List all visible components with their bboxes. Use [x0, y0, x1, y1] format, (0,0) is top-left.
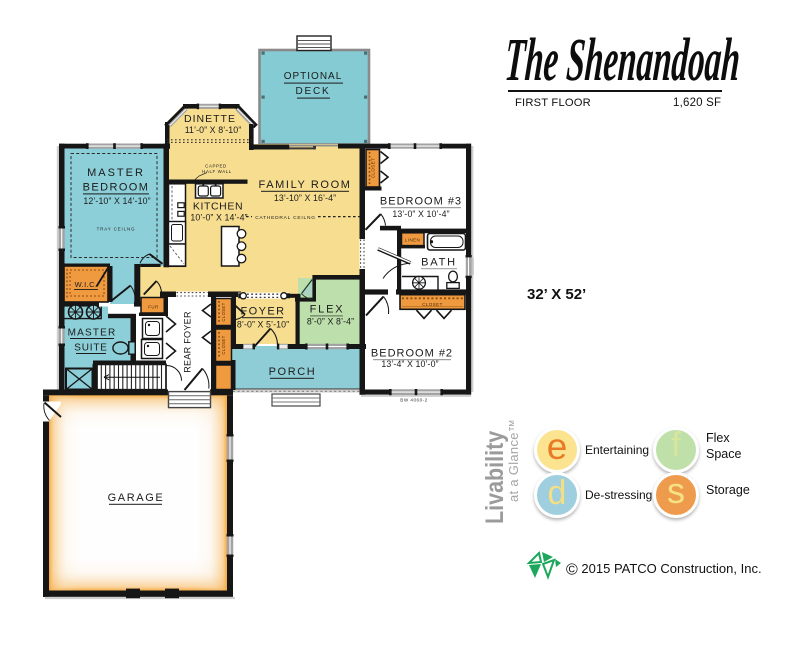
svg-text:11’-0” X 8’-10”: 11’-0” X 8’-10” — [185, 125, 242, 135]
svg-text:CLOSET: CLOSET — [422, 302, 443, 307]
svg-text:DINETTE: DINETTE — [184, 113, 236, 125]
svg-text:CLOSET: CLOSET — [221, 335, 226, 354]
svg-text:W.I.C.: W.I.C. — [75, 280, 98, 289]
svg-text:CLOSET: CLOSET — [221, 302, 226, 321]
svg-text:SUITE: SUITE — [74, 343, 107, 354]
svg-text:8’-0” X 5’-10”: 8’-0” X 5’-10” — [237, 320, 289, 330]
svg-text:BEDROOM #3: BEDROOM #3 — [380, 196, 462, 208]
svg-text:OPTIONAL: OPTIONAL — [284, 71, 343, 82]
svg-text:8’-0” X 8’-4”: 8’-0” X 8’-4” — [307, 317, 354, 327]
svg-text:CAPPED: CAPPED — [205, 164, 227, 169]
svg-text:MASTER: MASTER — [87, 167, 145, 179]
svg-text:PORCH: PORCH — [269, 366, 317, 378]
svg-text:REAR FOYER: REAR FOYER — [183, 311, 193, 373]
svg-text:DECK: DECK — [296, 86, 331, 97]
svg-text:FOYER: FOYER — [241, 306, 286, 318]
svg-text:CATHEDRAL CEILNG: CATHEDRAL CEILNG — [255, 215, 316, 221]
svg-text:LINEN: LINEN — [405, 238, 420, 243]
svg-text:GARAGE: GARAGE — [108, 492, 165, 504]
svg-text:13’-4” X 10’-0”: 13’-4” X 10’-0” — [381, 359, 438, 369]
svg-text:CLOSET: CLOSET — [371, 158, 376, 179]
svg-text:13’-0” X 10’-4”: 13’-0” X 10’-4” — [392, 209, 449, 219]
svg-text:BATH: BATH — [421, 257, 457, 269]
svg-text:KITCHEN: KITCHEN — [193, 201, 243, 213]
svg-text:FUR: FUR — [148, 305, 159, 310]
svg-text:13’-10” X 16’-4”: 13’-10” X 16’-4” — [274, 193, 336, 203]
svg-text:BW 4060-2: BW 4060-2 — [400, 398, 427, 403]
svg-text:BEDROOM #2: BEDROOM #2 — [371, 348, 453, 360]
svg-text:MASTER: MASTER — [68, 328, 117, 339]
svg-text:HALF WALL: HALF WALL — [202, 169, 232, 174]
svg-text:TRAY CEILNG: TRAY CEILNG — [97, 227, 136, 232]
svg-text:BEDROOM: BEDROOM — [83, 182, 150, 194]
svg-text:10’-0” X 14’-4”: 10’-0” X 14’-4” — [190, 213, 247, 223]
svg-text:FAMILY ROOM: FAMILY ROOM — [259, 179, 352, 191]
svg-text:FLEX: FLEX — [310, 304, 345, 316]
svg-text:12’-10” X 14’-10”: 12’-10” X 14’-10” — [83, 196, 150, 206]
